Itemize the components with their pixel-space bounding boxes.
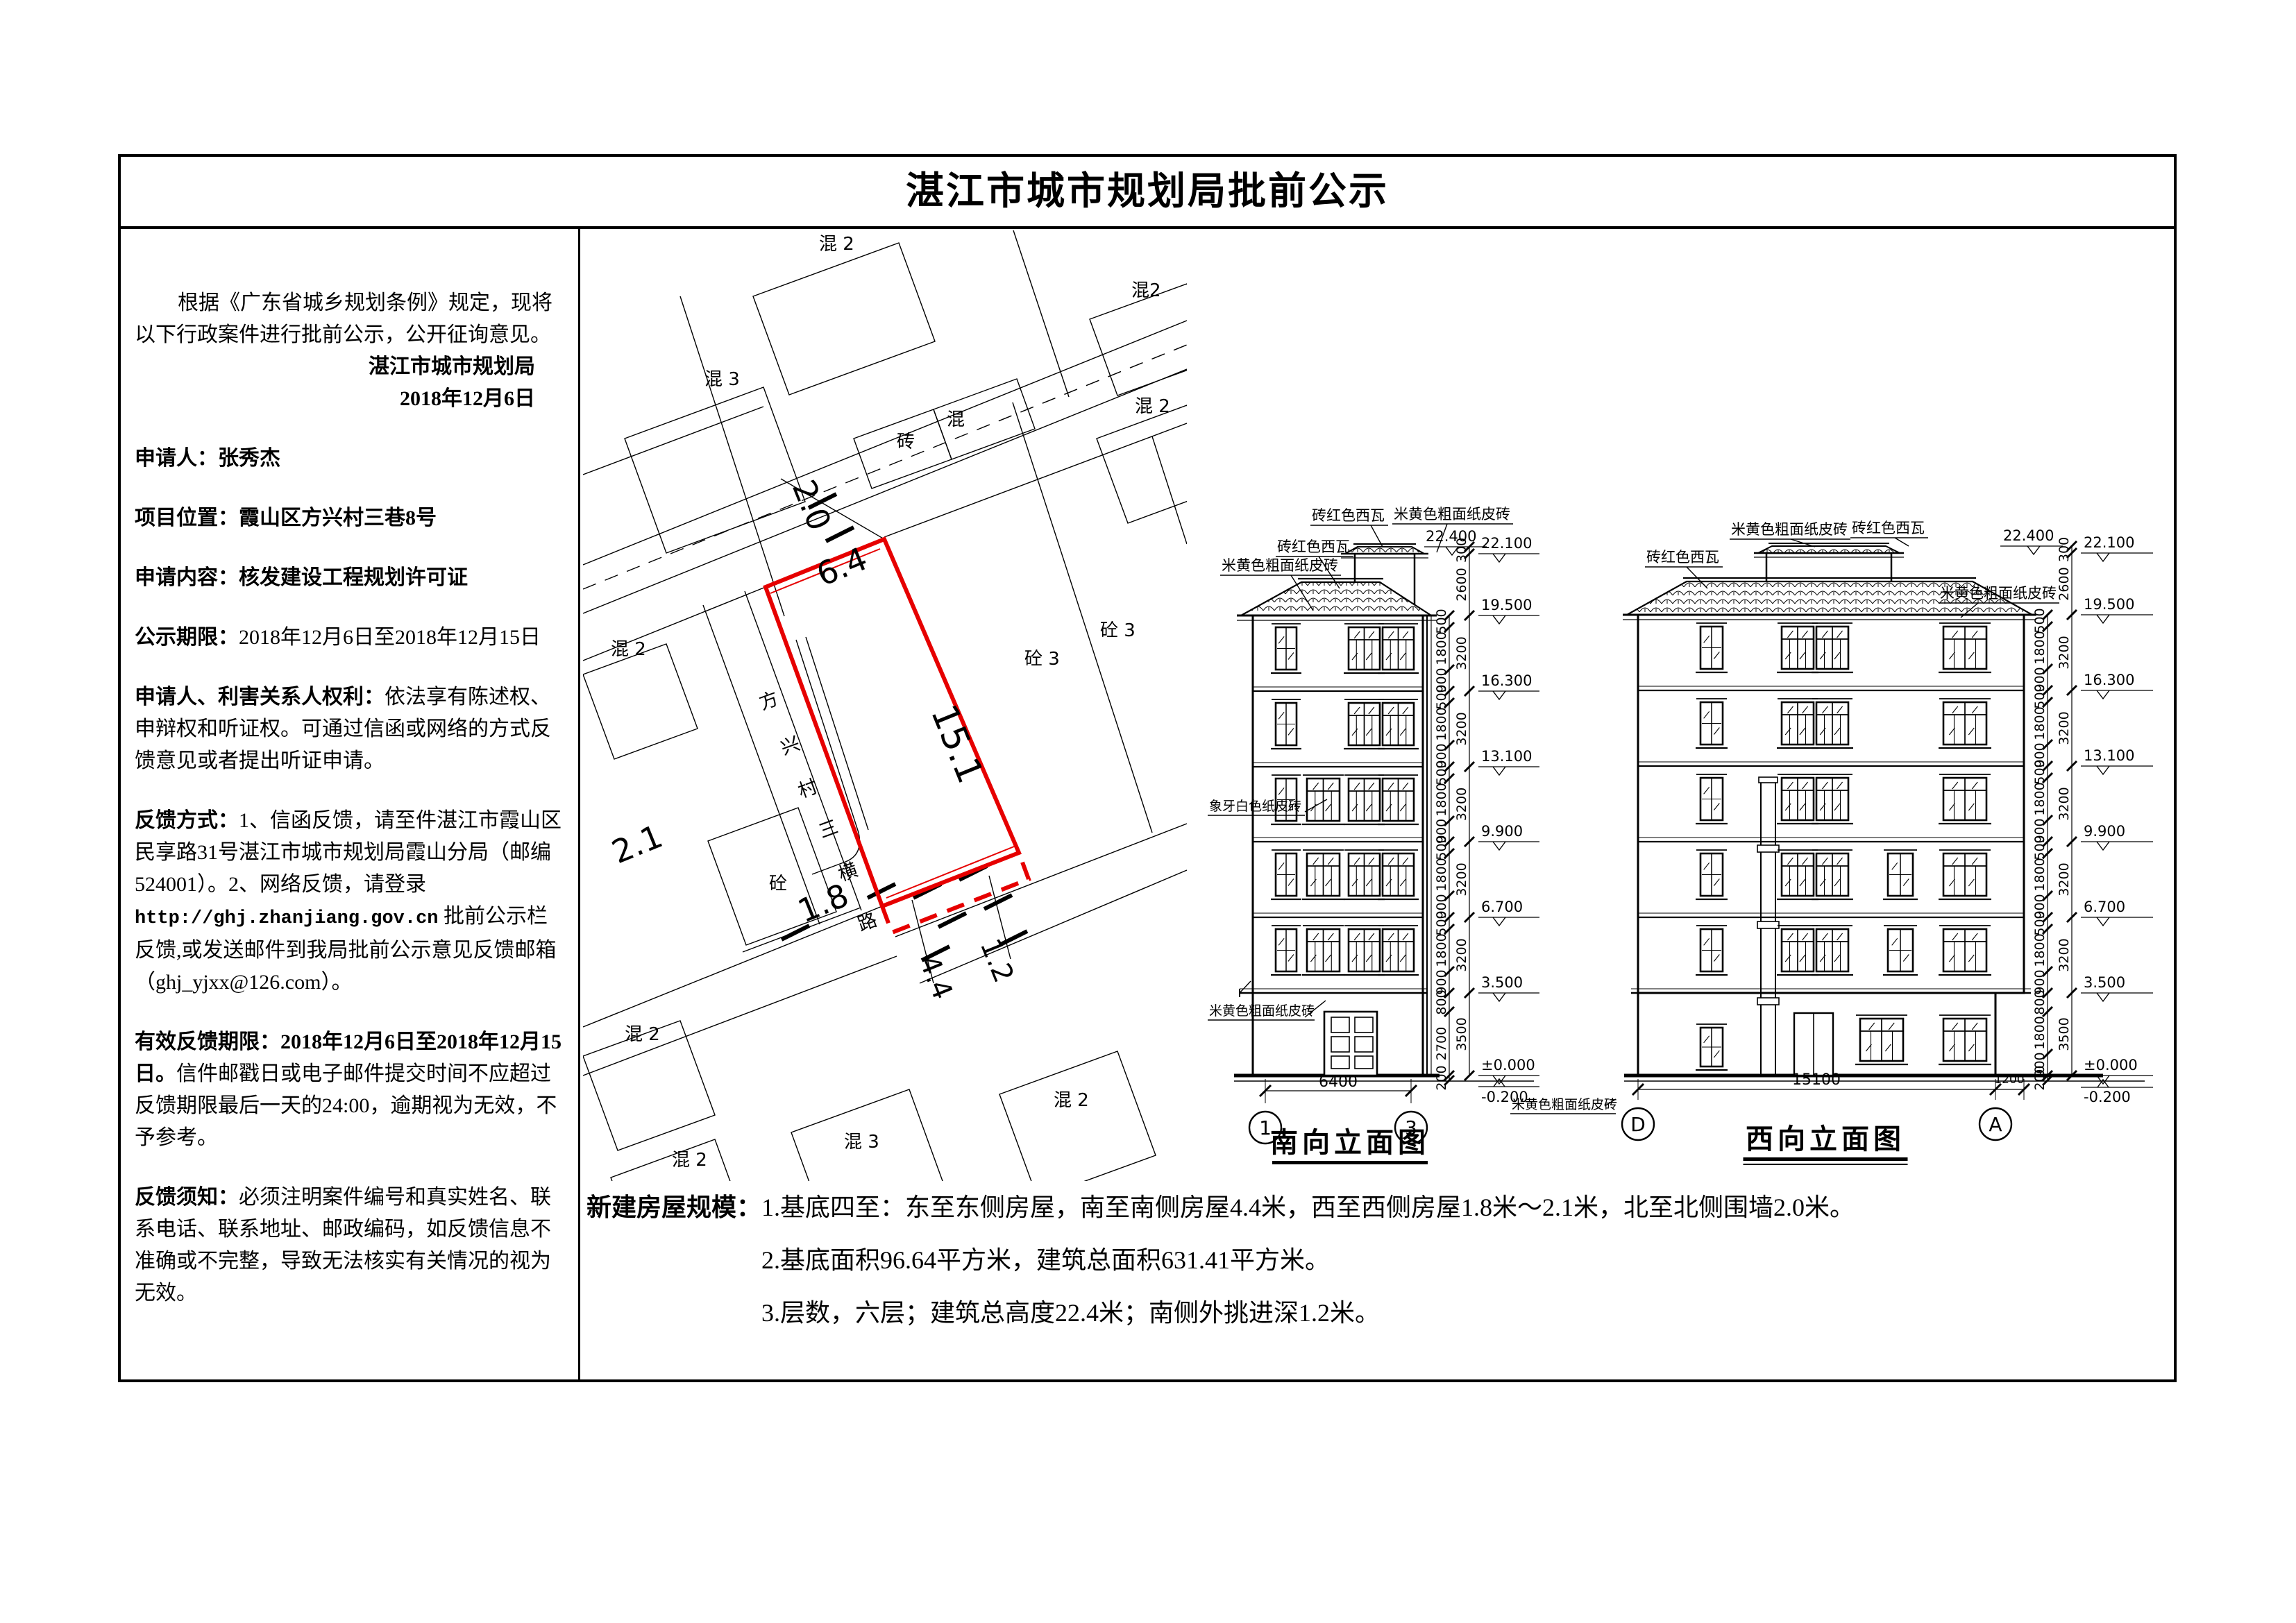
dim-text: 1800 [2032,782,2048,815]
level-text: -0.200 [2084,1089,2131,1105]
level-text: 22.100 [2084,534,2134,551]
dim-text: 800 [1434,989,1449,1014]
notice-intro-text: 根据《广东省城乡规划条例》规定，现将以下行政案件进行批前公示，公开征询意见。 [135,291,552,346]
dim-text: 500 [2032,759,2048,784]
title-bar: 湛江市城市规划局批前公示 [121,157,2174,229]
drawing-title: 西向立面图 [1746,1123,1905,1155]
south-elevation: 5001800900500180090050018009005001800900… [1208,486,1617,1166]
dim-text: 2700 [1434,1027,1449,1060]
parcel-label: 混 2 [625,1024,660,1045]
penthouse-roof [1758,546,1900,553]
level-triangle [2097,553,2109,561]
dim-text: 1800 [2032,1016,2048,1049]
material-label: 砖红色西瓦 [1277,538,1350,555]
dim-text: 200 [2032,1065,2048,1090]
west-elevation: 5001800900500180090050018009005001800900… [1617,479,2200,1166]
level-text: 6.700 [2084,899,2125,915]
building-scale-block: 新建房屋规模：1.基底四至：东至东侧房屋，南至南侧房屋4.4米，西至西侧房屋1.… [586,1182,2168,1338]
dim-text: 200 [1434,1065,1449,1090]
notice-panel: 根据《广东省城乡规划条例》规定，现将以下行政案件进行批前公示，公开征询意见。 湛… [121,229,580,1379]
dim-text: 2600 [1454,568,1469,601]
level-text: 16.300 [2084,672,2134,688]
page-title: 湛江市城市规划局批前公示 [121,157,2174,226]
dim-text: 500 [2032,910,2048,935]
dim-text: 1800 [1434,783,1449,816]
dim-text: 1800 [2032,706,2048,740]
period-label: 公示期限： [135,626,239,649]
scale-item-1-text: 1.基底四至：东至东侧房屋，南至南侧房屋4.4米，西至西侧房屋1.8米～2.1米… [761,1193,1855,1221]
level-triangle [1493,767,1505,775]
dim-text: 3200 [2057,938,2072,971]
dim-text: 1800 [1434,933,1449,967]
pipe-collar [1757,921,1779,928]
dim-text: 3200 [1454,712,1469,745]
scale-label: 新建房屋规模： [586,1193,761,1221]
parcel-label: 混 2 [1135,396,1170,417]
pipe-collar [1757,998,1779,1005]
rights-label: 申请人、利害关系人权利： [135,686,385,708]
road-char: 三 [816,816,841,842]
announcement-page: 湛江市城市规划局批前公示 根据《广东省城乡规划条例》规定，现将以下行政案件进行批… [0,0,2296,1623]
notice-date: 2018年12月6日 [135,383,564,415]
level-triangle [1493,842,1505,850]
parcel-label: 混 2 [1054,1090,1089,1111]
valid-row: 有效反馈期限：2018年12月6日至2018年12月15日。信件邮戳日或电子邮件… [135,1026,564,1154]
scale-item-3: 3.层数，六层；建筑总高度22.4米；南侧外挑进深1.2米。 [761,1288,2168,1338]
feedback-url: http://ghj.zhanjiang.gov.cn [135,908,438,929]
parcel-label: 混2 [1131,280,1161,301]
feedback-label: 反馈方式： [135,809,239,832]
location-row: 项目位置：霞山区方兴村三巷8号 [135,502,564,534]
dim-text: 500 [2032,835,2048,860]
parcel-label: 混 [947,409,965,430]
parcel-label: 混 3 [704,369,740,390]
level-triangle [2027,546,2040,554]
level-triangle [1493,615,1505,624]
dim-text: 3200 [1454,788,1469,821]
dim-text: 3200 [2057,863,2072,896]
content-row: 申请内容：核发建设工程规划许可证 [135,562,564,594]
material-label: 米黄色粗面纸皮砖 [1512,1097,1617,1112]
road-char: 村 [795,776,820,802]
applicant-label: 申请人： [135,447,218,470]
level-text: 19.500 [1481,597,1532,613]
dim-text: 1800 [1434,707,1449,740]
dim-text: 500 [2032,608,2048,633]
applicant-value: 张秀杰 [218,447,280,470]
level-triangle [2097,615,2109,623]
level-triangle [2097,842,2109,850]
level-text: 22.100 [1481,535,1532,552]
penthouse-roof [1345,547,1424,554]
dim-text: 1800 [1434,858,1449,891]
level-text: 9.900 [2084,823,2125,840]
red-parcel [766,539,1019,906]
level-triangle [1494,1079,1505,1087]
west-elevation-drawing: 5001800900500180090050018009005001800900… [1622,520,2153,1165]
dim-text: 2600 [2057,567,2072,600]
dim-west-a: 2.1 [607,817,668,871]
level-text: 22.400 [1426,528,1476,545]
pipe-collar [1759,777,1778,783]
dim-overhang: 1.2 [974,935,1020,987]
material-label: 砖红色西瓦 [1852,520,1925,536]
dim-text: 3200 [1454,863,1469,896]
notes-row: 反馈须知：必须注明案件编号和真实姓名、联系电话、联系地址、邮政编码，如反馈信息不… [135,1182,564,1309]
notice-intro: 根据《广东省城乡规划条例》规定，现将以下行政案件进行批前公示，公开征询意见。 [135,287,564,351]
period-row: 公示期限：2018年12月6日至2018年12月15日 [135,622,564,654]
pipe-collar [1757,845,1779,852]
south-elevation-drawing: 5001800900500180090050018009005001800900… [1208,506,1617,1166]
level-triangle [2097,993,2109,1001]
cadastral-linework [583,230,1187,1181]
dim-text: 1800 [1434,631,1449,665]
road-char: 路 [855,909,880,935]
level-text: 13.100 [2084,747,2134,764]
material-label: 米黄色粗面纸皮砖 [1940,585,2057,602]
dim-text: 1800 [2032,858,2048,891]
parcel-label: 砼 3 [1024,649,1060,670]
width-dim: 6400 [1319,1073,1358,1091]
drawing-line [1240,981,1251,993]
parcel-label: 混 2 [611,639,646,660]
dim-text: 3200 [1454,636,1469,670]
axis-label: D [1630,1113,1646,1136]
parcel-label: 混 3 [844,1132,879,1153]
title-underline [1744,1157,1908,1161]
level-text: 6.700 [1481,899,1523,915]
material-label: 象牙白色纸皮砖 [1209,799,1301,814]
level-text: ±0.000 [2084,1057,2138,1073]
level-triangle [2097,766,2109,774]
scale-item-1: 新建房屋规模：1.基底四至：东至东侧房屋，南至南侧房屋4.4米，西至西侧房屋1.… [586,1182,2168,1232]
dim-text: 500 [2032,683,2048,708]
title-underline [1744,1164,1908,1165]
door-panel [1331,1017,1349,1033]
dim-text: 1800 [2032,631,2048,664]
authority-text: 湛江市城市规划局 [369,355,535,378]
drawing-title: 南向立面图 [1270,1127,1430,1159]
notice-authority: 湛江市城市规划局 [135,351,564,383]
dim-text: 500 [1434,910,1449,935]
scale-item-3-text: 3.层数，六层；建筑总高度22.4米；南侧外挑进深1.2米。 [761,1299,1380,1327]
material-label: 米黄色粗面纸皮砖 [1209,1003,1315,1019]
dim-text: 3200 [2057,787,2072,820]
level-text: 3.500 [2084,974,2125,991]
dim-text: 500 [1434,835,1449,860]
dim-north: 2.0 [785,475,838,536]
dim-long-side: 15.1 [922,699,991,789]
dim-text: 3200 [2057,636,2072,669]
road-char: 兴 [778,733,803,759]
road-char: 方 [757,688,782,714]
level-text: 22.400 [2003,527,2054,544]
dim-south: 4.4 [913,951,959,1004]
dim-text: 3500 [2057,1017,2072,1051]
scale-item-2: 2.基底面积96.64平方米，建筑总面积631.41平方米。 [761,1235,2168,1285]
period-value: 2018年12月6日至2018年12月15日 [239,626,541,649]
dim-text: 500 [1434,609,1449,634]
dim-text: 500 [1434,684,1449,709]
door-panel [1355,1017,1373,1033]
scale-item-2-text: 2.基底面积96.64平方米，建筑总面积631.41平方米。 [761,1246,1330,1274]
dim-text: 500 [1434,760,1449,785]
parcel-label: 混 2 [672,1150,707,1171]
level-triangle [2097,917,2109,926]
door-panel [1331,1056,1349,1069]
date-text: 2018年12月6日 [400,387,535,410]
map-labels: 混 2 混 3 混2 混 2 砖 混 砼 3 砼 3 砼 混 2 混 2 混 3… [611,234,1170,1171]
parcel-label: 混 2 [819,234,854,255]
content-value: 核发建设工程规划许可证 [239,566,468,589]
location-label: 项目位置： [135,507,239,529]
level-text: 9.900 [1481,823,1523,840]
level-triangle [1493,917,1505,926]
level-triangle [1493,993,1505,1001]
axis-label: A [1989,1113,2002,1136]
door-panel [1355,1037,1373,1052]
dim-text: 3200 [1454,938,1469,971]
level-text: 16.300 [1481,672,1532,689]
dim-text: 1800 [2032,933,2048,967]
location-value: 霞山区方兴村三巷8号 [239,507,437,529]
level-text: 3.500 [1481,974,1523,991]
applicant-row: 申请人：张秀杰 [135,443,564,475]
dim-text: 300 [2057,537,2072,562]
content-label: 申请内容： [135,566,239,589]
rights-row: 申请人、利害关系人权利：依法享有陈述权、申辩权和听证权。可通过信函或网络的方式反… [135,681,564,777]
red-parcel-outline [766,539,1029,933]
site-plan: 混 2 混 3 混2 混 2 砖 混 砼 3 砼 3 砼 混 2 混 2 混 3… [583,230,1187,1181]
parcel-label: 砼 [769,874,787,894]
level-triangle [1493,691,1505,699]
level-text: 13.100 [1481,748,1532,765]
level-triangle [1493,554,1505,562]
width-dim: 15100 [1792,1071,1841,1089]
dim-text: 3500 [1454,1017,1469,1051]
overhang-dim: 1200 [1994,1073,2024,1087]
title-underline [1272,1161,1428,1164]
material-label: 米黄色粗面纸皮砖 [1222,557,1338,574]
parcel-label: 砼 3 [1100,620,1136,641]
dim-text: 800 [2032,989,2048,1014]
door-panel [1331,1037,1349,1052]
material-label: 米黄色粗面纸皮砖 [1394,506,1510,522]
level-triangle [2097,690,2109,699]
level-text: 19.500 [2084,596,2134,613]
level-text: ±0.000 [1481,1057,1535,1073]
valid-rest: 信件邮戳日或电子邮件提交时间不应超过反馈期限最后一天的24:00，逾期视为无效，… [135,1062,557,1149]
feedback-row: 反馈方式：1、信函反馈，请至件湛江市霞山区民享路31号湛江市城市规划局霞山分局（… [135,805,564,999]
valid-label: 有效反馈期限： [135,1030,280,1053]
material-label: 米黄色粗面纸皮砖 [1731,521,1848,538]
material-label: 砖红色西瓦 [1312,507,1385,524]
parcel-label: 砖 [897,432,915,452]
notes-label: 反馈须知： [135,1186,239,1209]
material-label: 砖红色西瓦 [1646,549,1719,566]
leader-line [1895,538,1909,546]
dim-text: 3200 [2057,711,2072,745]
door-panel [1355,1056,1373,1069]
